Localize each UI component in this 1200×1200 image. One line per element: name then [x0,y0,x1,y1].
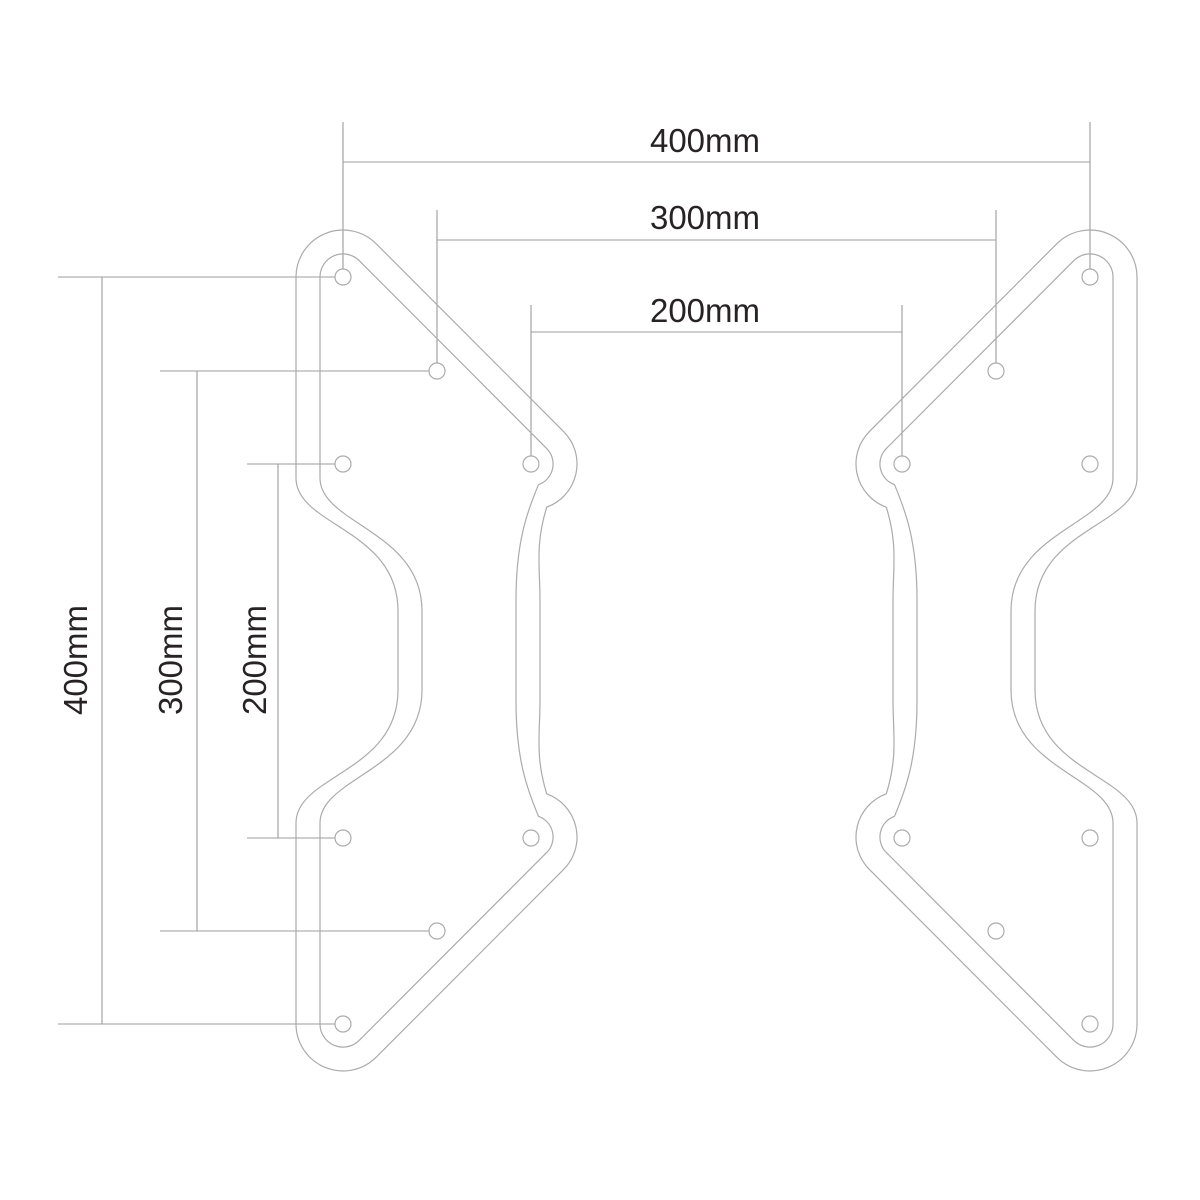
dim-label-horizontal-300: 300mm [650,199,760,236]
mounting-hole-right [1082,456,1098,472]
mounting-hole-right [1082,269,1098,285]
mounting-hole-left [523,456,539,472]
mounting-hole-right [1082,830,1098,846]
mounting-hole-left [335,830,351,846]
mounting-hole-right [1082,1016,1098,1032]
mounting-hole-left [429,923,445,939]
mounting-hole-left [429,363,445,379]
mounting-hole-left [335,1016,351,1032]
dim-label-vertical-400: 400mm [57,605,94,715]
adapter-plates [296,230,1137,1071]
dim-label-horizontal-200: 200mm [650,292,760,329]
drawing-canvas: 400mm 300mm 200mm 400mm 300mm 200mm [0,0,1200,1200]
vesa-adapter-technical-drawing: 400mm 300mm 200mm 400mm 300mm 200mm [0,0,1200,1200]
dim-label-vertical-200: 200mm [236,605,273,715]
dim-label-horizontal-400: 400mm [650,122,760,159]
dim-label-vertical-300: 300mm [152,605,189,715]
mounting-hole-left [523,830,539,846]
dimension-lines [58,122,1090,1024]
mounting-hole-right [894,830,910,846]
mounting-hole-left [335,456,351,472]
mounting-hole-right [894,456,910,472]
mounting-hole-right [988,923,1004,939]
mounting-hole-right [988,363,1004,379]
mounting-holes [335,269,1098,1032]
mounting-hole-left [335,269,351,285]
